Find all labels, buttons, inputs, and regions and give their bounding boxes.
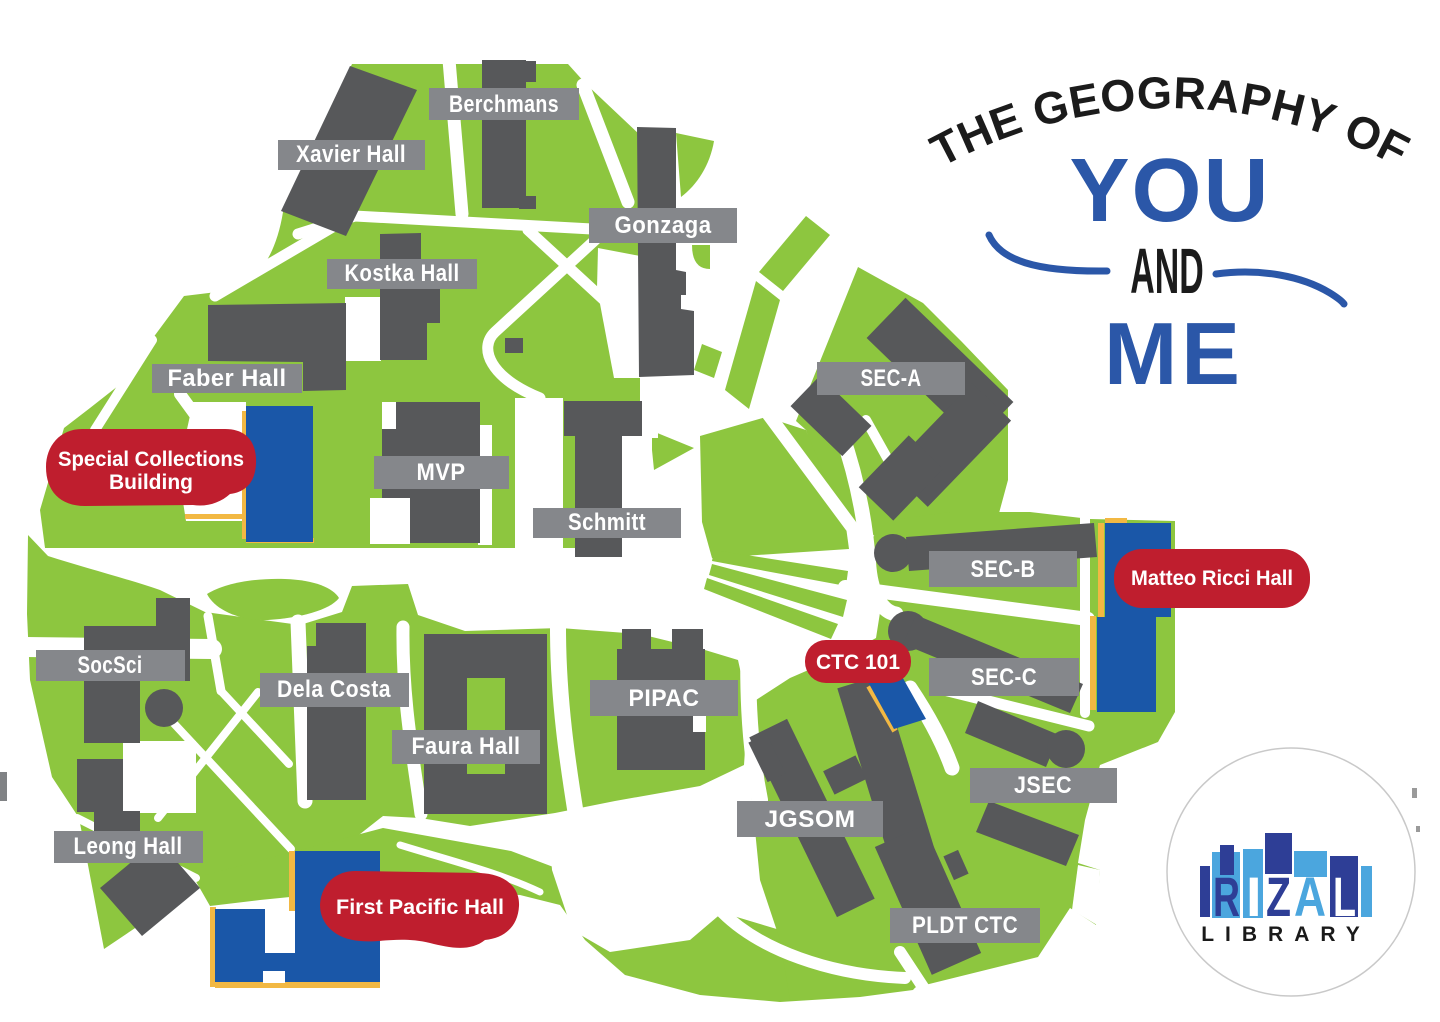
svg-text:AND: AND [1130, 236, 1203, 307]
svg-text:Z: Z [1266, 865, 1291, 928]
svg-text:CTC 101: CTC 101 [816, 651, 900, 674]
svg-text:I: I [1246, 865, 1262, 928]
svg-text:SEC-A: SEC-A [861, 365, 922, 392]
svg-text:Berchmans: Berchmans [449, 91, 559, 118]
svg-text:LIBRARY: LIBRARY [1201, 923, 1371, 946]
svg-text:L: L [1333, 865, 1356, 928]
svg-text:Faber Hall: Faber Hall [168, 365, 287, 392]
svg-text:Special Collections: Special Collections [58, 448, 244, 471]
svg-text:Matteo Ricci Hall: Matteo Ricci Hall [1131, 567, 1293, 590]
svg-text:Gonzaga: Gonzaga [615, 212, 712, 239]
svg-text:MVP: MVP [417, 459, 466, 486]
svg-text:A: A [1294, 865, 1326, 928]
svg-text:PIPAC: PIPAC [629, 685, 700, 712]
svg-text:Kostka Hall: Kostka Hall [345, 260, 460, 287]
svg-text:R: R [1213, 865, 1240, 928]
svg-text:JSEC: JSEC [1014, 772, 1072, 799]
svg-text:Faura Hall: Faura Hall [412, 733, 521, 760]
svg-text:Leong Hall: Leong Hall [74, 833, 183, 860]
svg-text:JGSOM: JGSOM [765, 806, 856, 833]
svg-text:SEC-C: SEC-C [971, 664, 1037, 691]
svg-text:ME: ME [1104, 304, 1244, 403]
svg-text:PLDT CTC: PLDT CTC [912, 912, 1018, 939]
svg-text:Dela Costa: Dela Costa [277, 676, 391, 703]
svg-text:Xavier Hall: Xavier Hall [296, 141, 406, 168]
svg-text:First Pacific Hall: First Pacific Hall [336, 896, 504, 919]
svg-text:SEC-B: SEC-B [971, 556, 1036, 583]
svg-text:YOU: YOU [1069, 141, 1270, 241]
svg-text:SocSci: SocSci [78, 652, 143, 679]
svg-text:Building: Building [109, 471, 193, 494]
svg-text:Schmitt: Schmitt [568, 509, 646, 536]
